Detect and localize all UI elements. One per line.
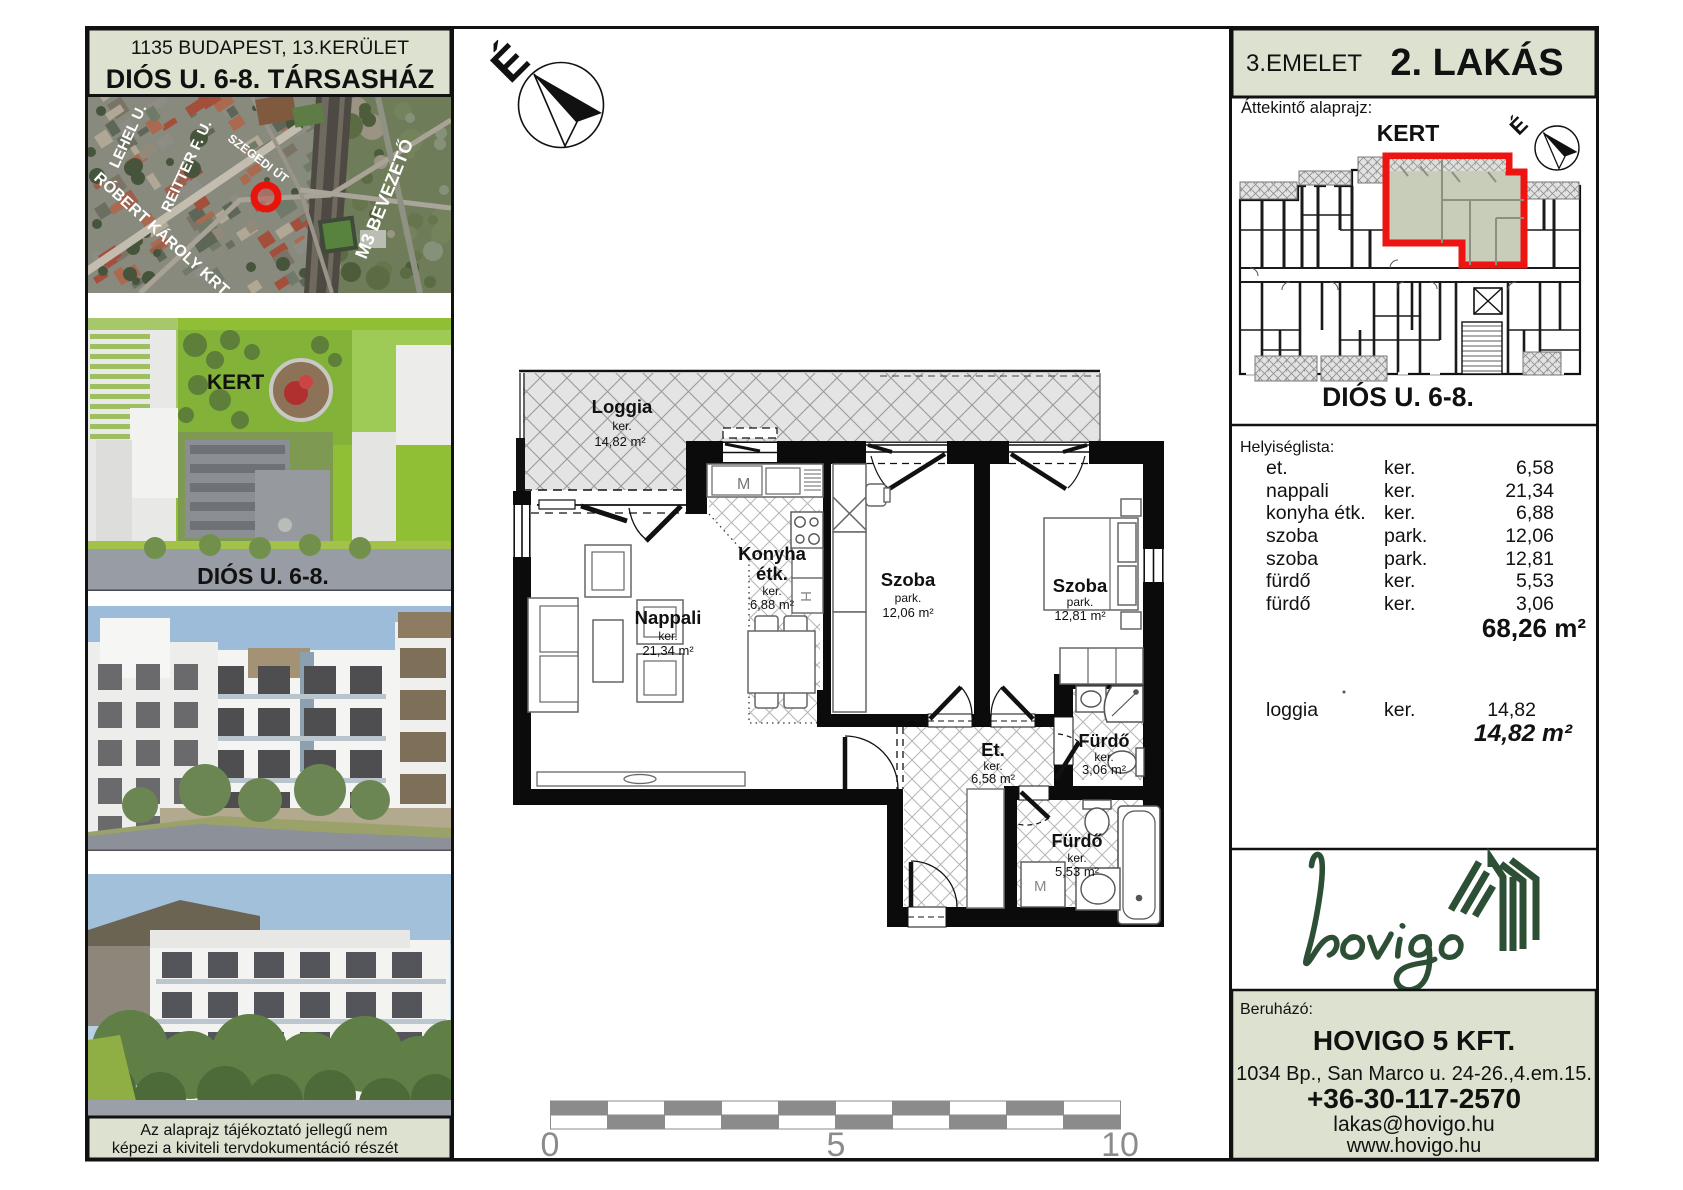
svg-text:HOVIGO 5 KFT.: HOVIGO 5 KFT. [1313, 1025, 1515, 1056]
svg-text:5,53: 5,53 [1516, 570, 1554, 592]
svg-text:ker.: ker. [658, 629, 677, 643]
svg-text:Áttekintő alaprajz:: Áttekintő alaprajz: [1241, 98, 1372, 117]
svg-text:21,34: 21,34 [1505, 480, 1554, 502]
svg-text:ker.: ker. [1067, 851, 1086, 865]
svg-text:DIÓS U. 6-8.: DIÓS U. 6-8. [197, 562, 329, 589]
svg-text:12,81 m²: 12,81 m² [1054, 608, 1106, 623]
svg-text:ker.: ker. [1384, 699, 1415, 721]
svg-text:21,34 m²: 21,34 m² [642, 643, 694, 658]
svg-text:2. LAKÁS: 2. LAKÁS [1390, 40, 1563, 84]
svg-text:3.EMELET: 3.EMELET [1246, 50, 1362, 77]
svg-text:KERT: KERT [207, 371, 264, 394]
svg-text:park.: park. [1384, 525, 1427, 547]
svg-text:konyha étk.: konyha étk. [1266, 502, 1366, 524]
svg-text:park.: park. [1384, 548, 1427, 570]
svg-text:DIÓS U. 6-8. TÁRSASHÁZ: DIÓS U. 6-8. TÁRSASHÁZ [106, 63, 435, 94]
svg-text:ker.: ker. [1384, 457, 1415, 479]
svg-text:fürdő: fürdő [1266, 593, 1311, 615]
svg-text:ker.: ker. [762, 584, 781, 598]
svg-text:14,82: 14,82 [1487, 699, 1536, 721]
svg-text:Nappali: Nappali [635, 607, 702, 628]
svg-text:park.: park. [1067, 595, 1094, 609]
svg-text:12,06: 12,06 [1505, 525, 1554, 547]
svg-text:étk.: étk. [756, 563, 788, 584]
svg-text:6,58 m²: 6,58 m² [971, 771, 1016, 786]
svg-text:68,26 m²: 68,26 m² [1482, 613, 1586, 643]
svg-text:fürdő: fürdő [1266, 570, 1311, 592]
svg-text:ker.: ker. [612, 419, 631, 433]
svg-text:Loggia: Loggia [592, 396, 653, 417]
svg-text:1034 Bp., San Marco u. 24-26.,: 1034 Bp., San Marco u. 24-26.,4.em.15. [1236, 1063, 1592, 1085]
svg-text:3,06: 3,06 [1516, 593, 1554, 615]
svg-text:Fürdő: Fürdő [1079, 731, 1130, 751]
svg-text:12,81: 12,81 [1505, 548, 1554, 570]
svg-text:Konyha: Konyha [738, 543, 807, 564]
svg-text:14,82 m²: 14,82 m² [1474, 720, 1573, 747]
svg-text:3,06 m²: 3,06 m² [1082, 762, 1127, 777]
svg-text:ker.: ker. [1384, 593, 1415, 615]
svg-text:1135 BUDAPEST, 13.KERÜLET: 1135 BUDAPEST, 13.KERÜLET [131, 37, 409, 59]
svg-text:Et.: Et. [981, 739, 1005, 760]
svg-text:0: 0 [541, 1126, 560, 1164]
svg-text:É: É [480, 33, 538, 91]
svg-text:ker.: ker. [1384, 570, 1415, 592]
svg-text:lakas@hovigo.hu: lakas@hovigo.hu [1333, 1113, 1494, 1136]
svg-text:+36-30-117-2570: +36-30-117-2570 [1307, 1083, 1521, 1114]
svg-text:6,88 m²: 6,88 m² [750, 597, 795, 612]
svg-text:nappali: nappali [1266, 480, 1329, 502]
svg-text:szoba: szoba [1266, 548, 1318, 570]
svg-text:DIÓS U. 6-8.: DIÓS U. 6-8. [1322, 382, 1474, 412]
svg-text:H: H [797, 591, 814, 602]
svg-text:5: 5 [827, 1126, 846, 1164]
svg-text:10: 10 [1101, 1126, 1139, 1164]
svg-text:12,06 m²: 12,06 m² [882, 605, 934, 620]
svg-text:loggia: loggia [1266, 699, 1318, 721]
svg-text:Beruházó:: Beruházó: [1240, 1001, 1313, 1018]
svg-text:14,82 m²: 14,82 m² [594, 434, 646, 449]
svg-text:ker.: ker. [1384, 502, 1415, 524]
svg-text:M: M [1034, 878, 1047, 895]
svg-text:Szoba: Szoba [881, 569, 936, 590]
svg-text:Fürdő: Fürdő [1052, 831, 1103, 851]
svg-text:www.hovigo.hu: www.hovigo.hu [1346, 1135, 1482, 1157]
svg-text:szoba: szoba [1266, 525, 1318, 547]
svg-text:képezi a kiviteli tervdokument: képezi a kiviteli tervdokumentáció részé… [112, 1140, 399, 1157]
svg-text:et.: et. [1266, 457, 1288, 479]
svg-text:6,58: 6,58 [1516, 457, 1554, 479]
svg-text:6,88: 6,88 [1516, 502, 1554, 524]
svg-text:KERT: KERT [1377, 120, 1440, 146]
svg-text:park.: park. [895, 591, 922, 605]
svg-text:Szoba: Szoba [1053, 575, 1108, 596]
svg-text:5,53 m²: 5,53 m² [1055, 864, 1100, 879]
svg-text:Az alaprajz tájékoztató jelleg: Az alaprajz tájékoztató jellegű nem [140, 1122, 387, 1139]
svg-text:Helyiséglista:: Helyiséglista: [1240, 439, 1334, 456]
svg-text:M: M [737, 476, 750, 493]
svg-text:ker.: ker. [1384, 480, 1415, 502]
